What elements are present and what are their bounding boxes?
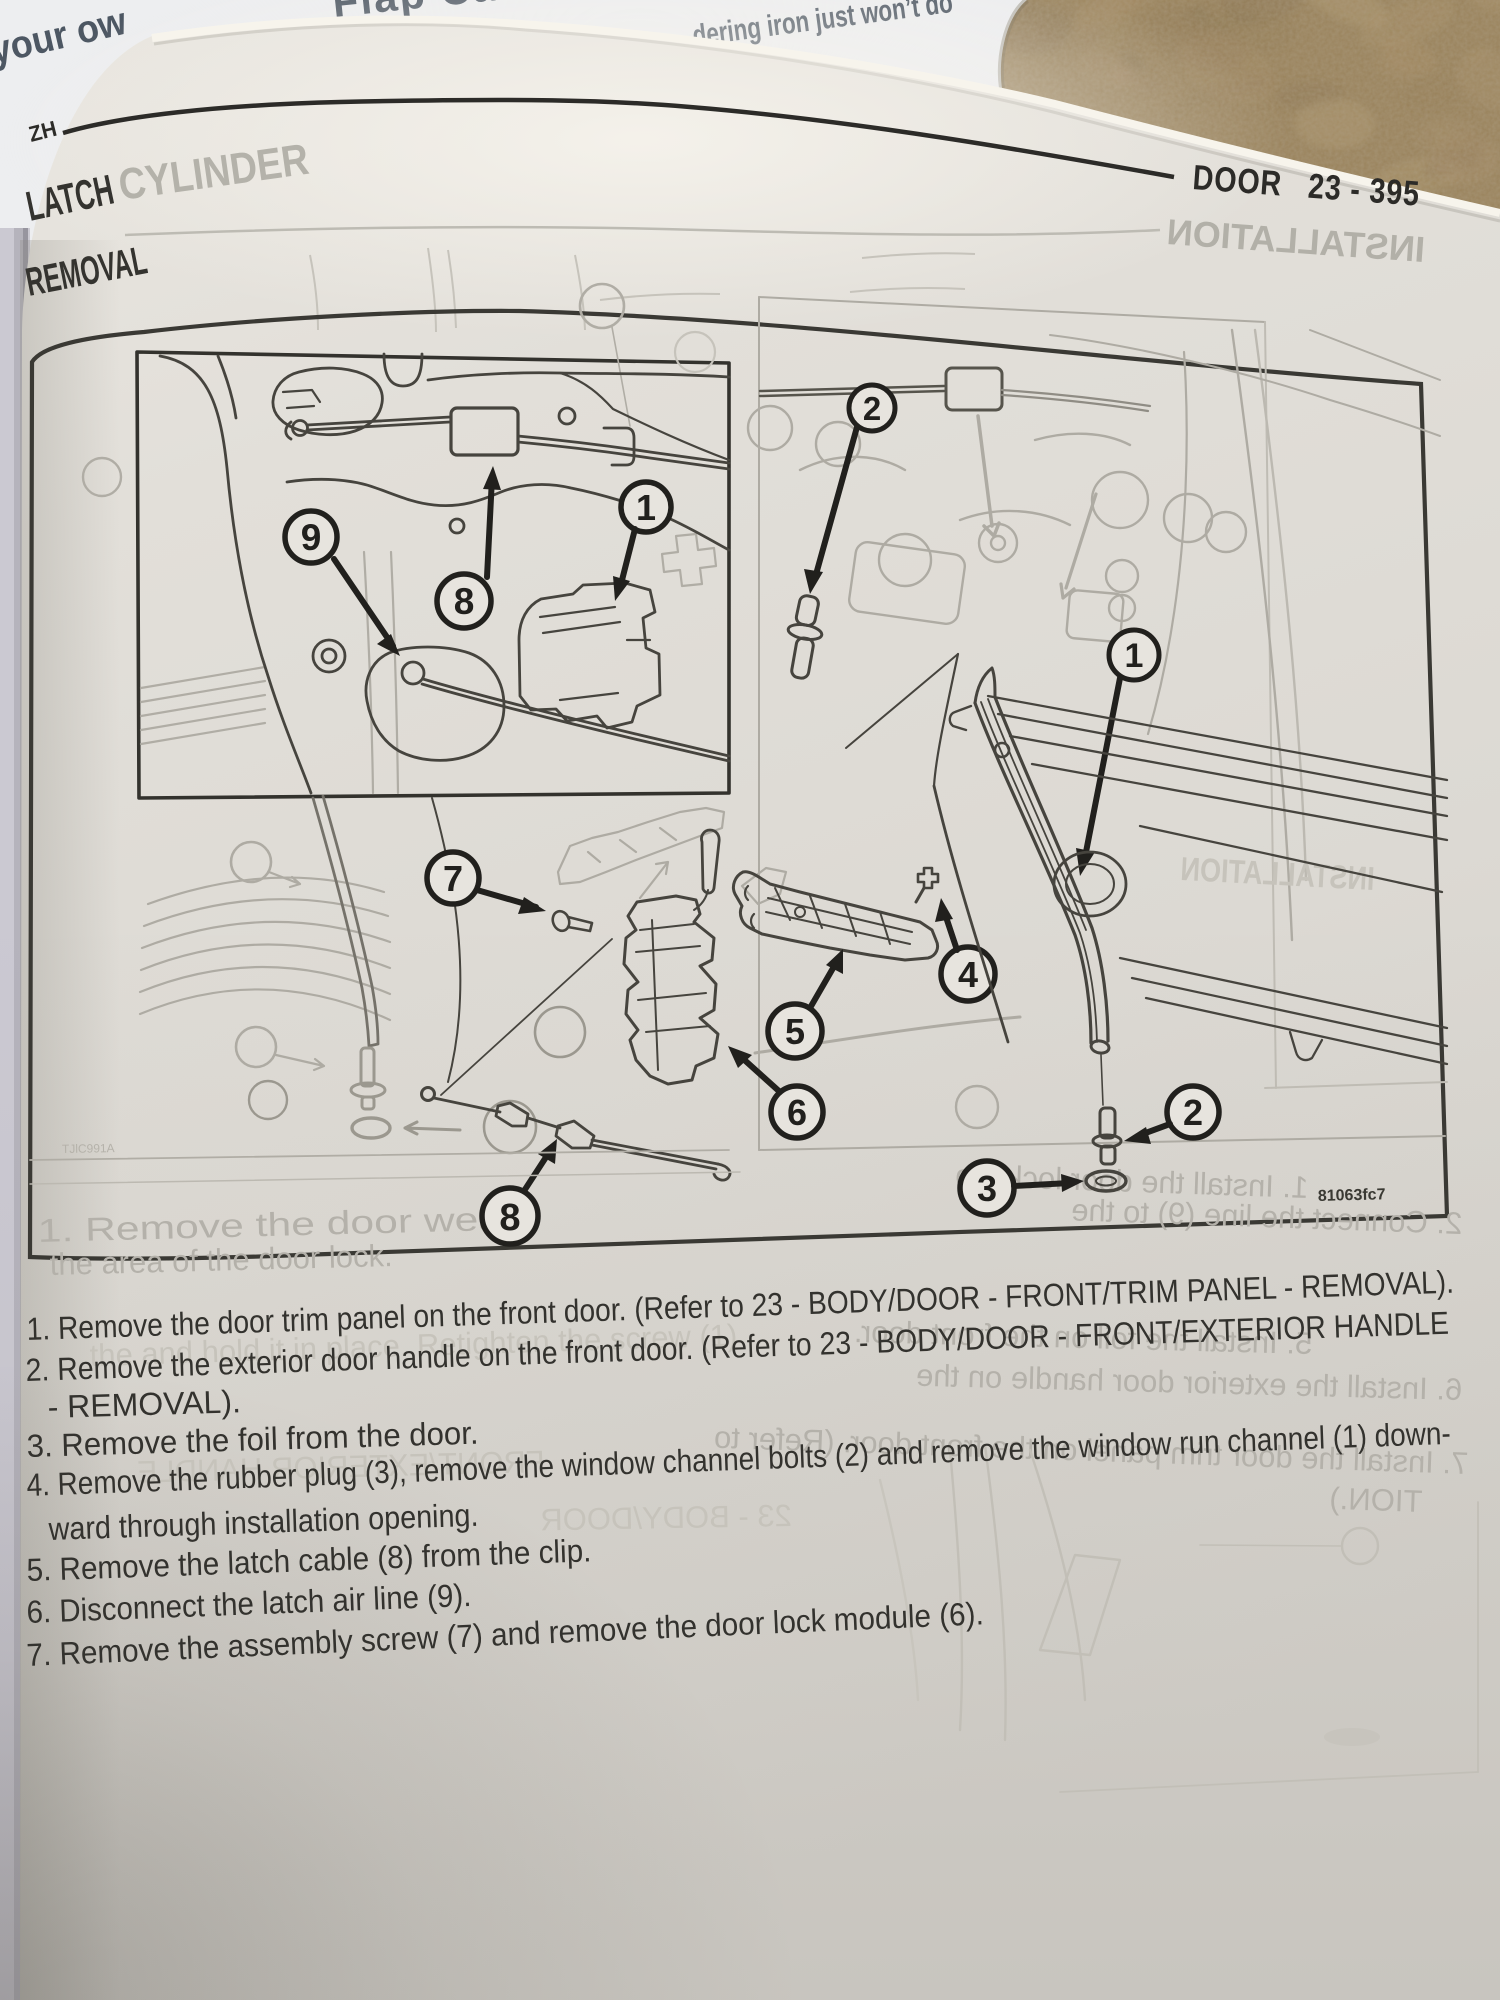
svg-text:8: 8	[454, 581, 475, 622]
svg-text:81063fc7: 81063fc7	[1318, 1186, 1386, 1205]
svg-text:1: 1	[1125, 637, 1144, 675]
svg-text:TJlC991A: TJlC991A	[62, 1141, 115, 1156]
svg-text:23 - BODY/DOOR: 23 - BODY/DOOR	[540, 1498, 792, 1537]
svg-text:2: 2	[863, 390, 881, 427]
svg-text:TION.): TION.)	[1329, 1481, 1423, 1519]
svg-text:9: 9	[301, 517, 322, 558]
svg-text:7: 7	[443, 858, 463, 899]
svg-text:3: 3	[977, 1168, 997, 1209]
svg-text:8: 8	[499, 1197, 520, 1239]
svg-text:- REMOVAL).: - REMOVAL).	[47, 1383, 241, 1425]
svg-text:5: 5	[785, 1011, 805, 1052]
svg-text:4: 4	[958, 954, 978, 995]
svg-text:2: 2	[1183, 1092, 1203, 1133]
svg-text:1: 1	[636, 487, 656, 528]
svg-text:6: 6	[787, 1092, 807, 1133]
